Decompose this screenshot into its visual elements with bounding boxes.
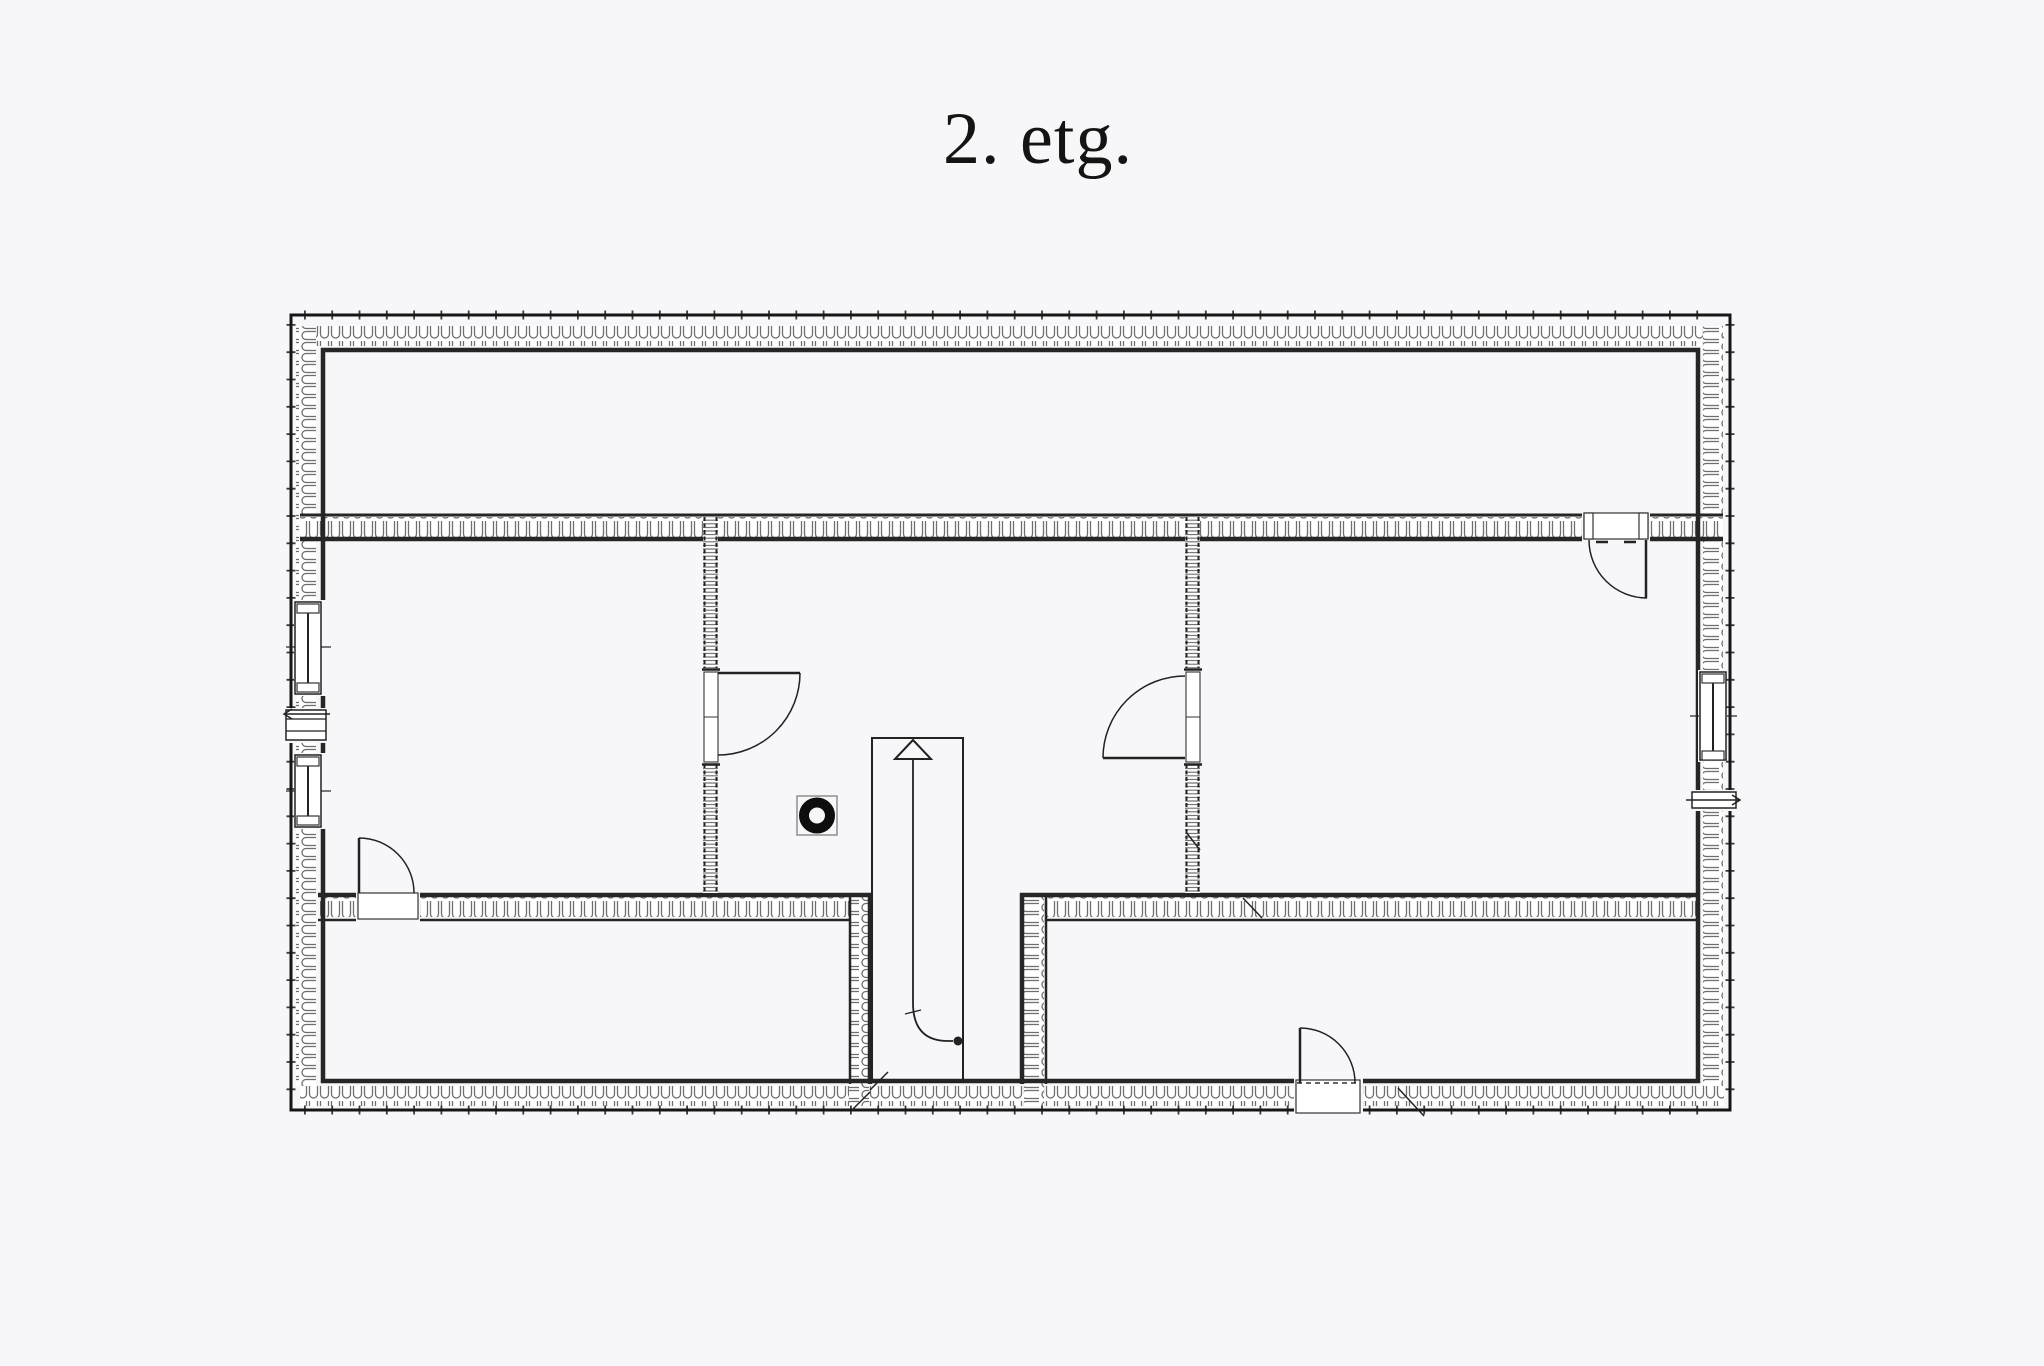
bottom-wall-insulation: [300, 1086, 1724, 1106]
door-lower-left-swing: [359, 838, 414, 893]
window-left-2-jamb-top: [297, 757, 319, 766]
stair-shaft: [872, 738, 963, 1082]
cross-wall-insulation: [300, 517, 1723, 537]
window-left-2-jamb-bottom: [297, 816, 319, 825]
floor-title: 2. etg.: [943, 98, 1133, 180]
door-cross-wall-jamb-left: [1584, 513, 1593, 539]
floor-plan-drawing: [280, 315, 1742, 1117]
window-right-jamb-bottom: [1702, 751, 1724, 760]
door-bottom-frame: [1296, 1080, 1360, 1113]
door-lower-left-frame: [358, 893, 418, 919]
window-right-jamb-top: [1702, 674, 1724, 683]
exterior-wall-outer-line: [291, 315, 1730, 1110]
window-left-1-jamb-top: [297, 604, 319, 613]
stair-start-dot: [954, 1037, 963, 1046]
door-cross-wall-jamb-right: [1639, 513, 1648, 539]
top-wall-insulation: [300, 326, 1724, 346]
passage-side-wall-insulation: [1024, 897, 1044, 1106]
door-bottom-swing: [1300, 1028, 1355, 1083]
exterior-wall-inner-line: [323, 350, 1698, 1081]
floor-plan-page: 2. etg.: [0, 0, 2044, 1366]
door-cross-wall-swing: [1589, 540, 1647, 598]
lower-right-wall-insulation: [1024, 897, 1700, 917]
stair-arrow-head: [895, 740, 931, 759]
stair-side-wall-insulation: [849, 897, 869, 1106]
door-partition-east-swing: [1103, 676, 1185, 758]
floor-plan-canvas: 2. etg.: [0, 0, 2044, 1366]
stair-direction-line: [913, 742, 953, 1041]
left-wall-insulation: [296, 326, 316, 1086]
window-left-1-jamb-bottom: [297, 683, 319, 692]
door-partition-west-swing: [718, 673, 800, 755]
